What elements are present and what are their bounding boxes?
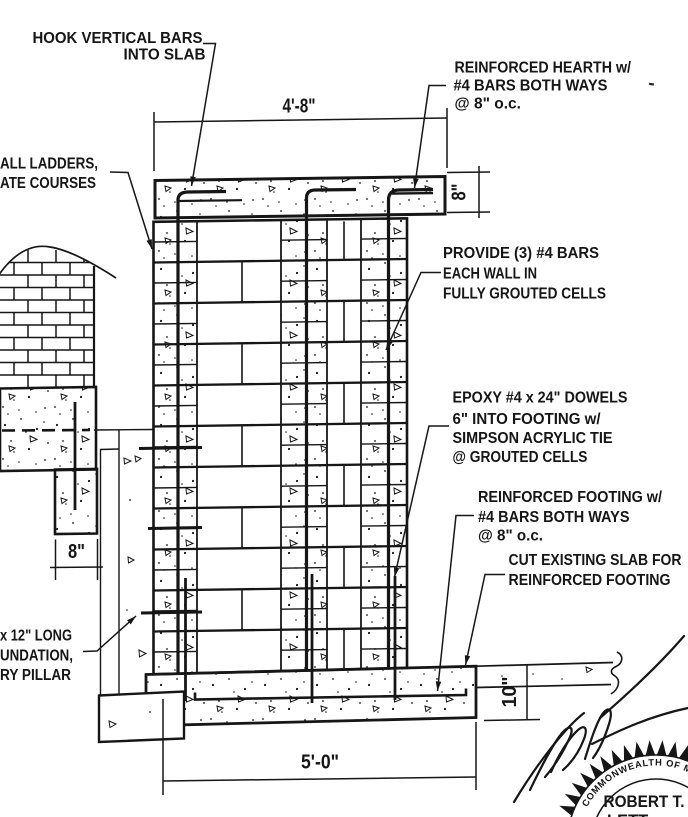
svg-text:REINFORCED HEARTH w/: REINFORCED HEARTH w/ xyxy=(455,60,632,77)
svg-text:RY PILLAR: RY PILLAR xyxy=(0,667,71,684)
svg-text:5'-0": 5'-0" xyxy=(301,752,339,774)
svg-text:ALL LADDERS,: ALL LADDERS, xyxy=(0,156,98,173)
svg-text:#4 BARS BOTH WAYS: #4 BARS BOTH WAYS xyxy=(454,78,608,95)
svg-text:UNDATION,: UNDATION, xyxy=(0,648,73,665)
svg-text:ATE COURSES: ATE COURSES xyxy=(0,175,96,192)
svg-text:4'-8": 4'-8" xyxy=(283,96,316,118)
svg-text:@ GROUTED CELLS: @ GROUTED CELLS xyxy=(453,449,588,466)
svg-text:EACH WALL IN: EACH WALL IN xyxy=(443,266,537,283)
svg-text:x 12" LONG: x 12" LONG xyxy=(0,628,72,645)
svg-text:SIMPSON ACRYLIC TIE: SIMPSON ACRYLIC TIE xyxy=(453,430,613,447)
svg-text:FULLY GROUTED CELLS: FULLY GROUTED CELLS xyxy=(443,286,606,303)
svg-text:REINFORCED FOOTING w/: REINFORCED FOOTING w/ xyxy=(478,489,663,506)
svg-text:10": 10" xyxy=(499,677,521,708)
svg-text:CUT EXISTING SLAB FOR: CUT EXISTING SLAB FOR xyxy=(509,552,682,569)
svg-text:REINFORCED FOOTING: REINFORCED FOOTING xyxy=(509,572,671,589)
svg-text:8": 8" xyxy=(68,541,85,563)
svg-text:@ 8" o.c.: @ 8" o.c. xyxy=(455,96,522,113)
svg-text:6" INTO FOOTING w/: 6" INTO FOOTING w/ xyxy=(453,411,602,428)
svg-text:LETT: LETT xyxy=(607,812,648,817)
svg-text:INTO SLAB: INTO SLAB xyxy=(124,47,206,64)
svg-text:HOOK VERTICAL BARS: HOOK VERTICAL BARS xyxy=(33,30,203,47)
svg-text:#4 BARS BOTH WAYS: #4 BARS BOTH WAYS xyxy=(478,509,630,526)
svg-text:EPOXY #4 x 24" DOWELS: EPOXY #4 x 24" DOWELS xyxy=(453,390,628,407)
svg-text:ROBERT T.: ROBERT T. xyxy=(604,793,685,811)
svg-text:@ 8" o.c.: @ 8" o.c. xyxy=(478,528,543,545)
svg-text:8": 8" xyxy=(449,184,471,201)
svg-text:PROVIDE (3) #4 BARS: PROVIDE (3) #4 BARS xyxy=(443,245,599,262)
